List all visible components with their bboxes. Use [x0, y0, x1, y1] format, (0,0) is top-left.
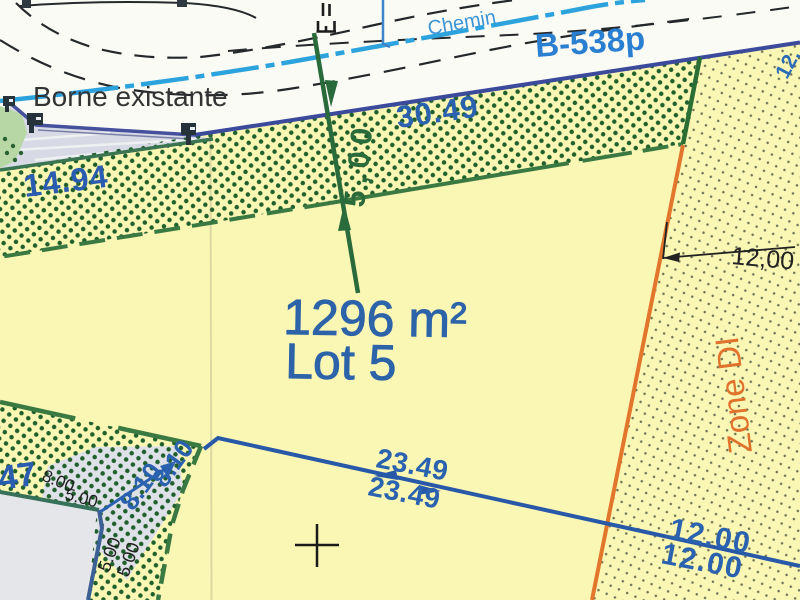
- svg-text:Lot 5: Lot 5: [285, 333, 397, 391]
- svg-text:47: 47: [0, 455, 39, 498]
- svg-text:Borne existante: Borne existante: [33, 81, 228, 112]
- svg-text:12,00: 12,00: [730, 242, 795, 275]
- svg-text:B-538p: B-538p: [534, 19, 646, 64]
